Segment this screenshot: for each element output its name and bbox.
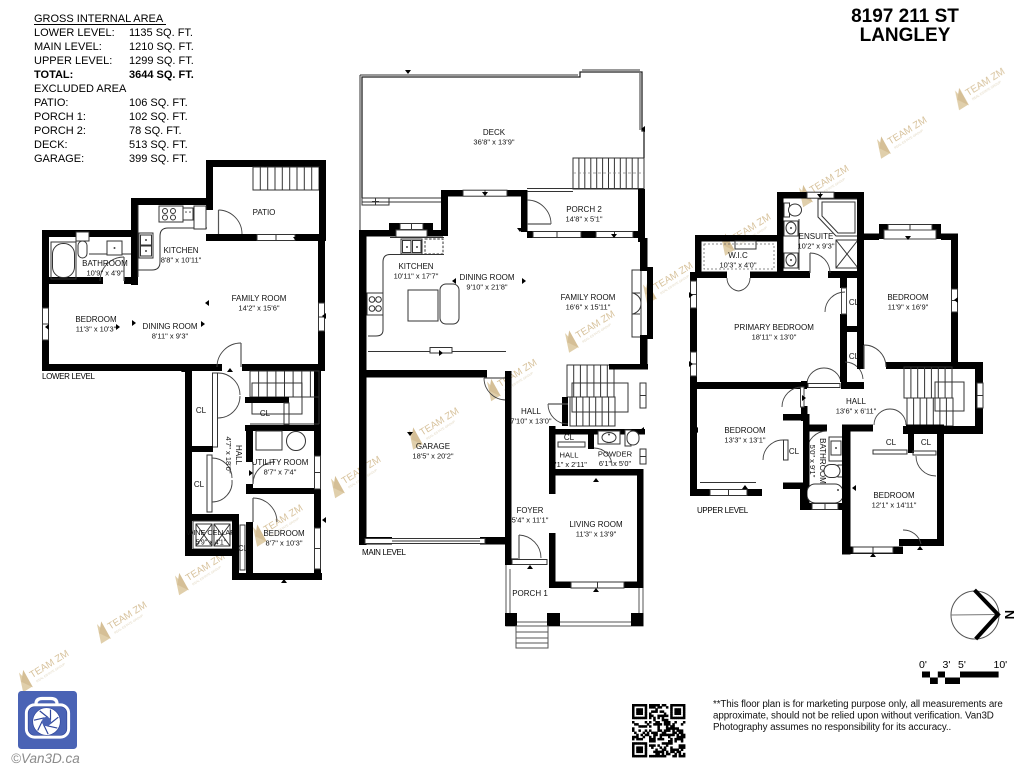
svg-text:1299 SQ. FT.: 1299 SQ. FT. bbox=[129, 55, 194, 67]
svg-text:13'6" x 6'11": 13'6" x 6'11" bbox=[836, 407, 877, 416]
svg-text:3': 3' bbox=[943, 659, 951, 671]
svg-text:TOTAL:: TOTAL: bbox=[34, 69, 73, 81]
svg-text:1210 SQ. FT.: 1210 SQ. FT. bbox=[129, 41, 194, 53]
svg-text:16'6" x 15'11": 16'6" x 15'11" bbox=[566, 303, 611, 312]
svg-text:PORCH 1: PORCH 1 bbox=[512, 589, 548, 598]
svg-text:GARAGE:: GARAGE: bbox=[34, 153, 84, 165]
svg-text:14'2" x 15'6": 14'2" x 15'6" bbox=[238, 304, 279, 313]
svg-text:ENSUITE: ENSUITE bbox=[799, 232, 834, 241]
svg-text:78 SQ. FT.: 78 SQ. FT. bbox=[129, 125, 182, 137]
svg-text:513 SQ. FT.: 513 SQ. FT. bbox=[129, 139, 188, 151]
svg-text:6'1" x 5'0": 6'1" x 5'0" bbox=[599, 459, 632, 468]
svg-text:CL: CL bbox=[196, 406, 207, 415]
svg-text:PRIMARY BEDROOM: PRIMARY BEDROOM bbox=[734, 323, 814, 332]
svg-text:11'3" x 13'9": 11'3" x 13'9" bbox=[576, 530, 617, 539]
svg-text:DINING ROOM: DINING ROOM bbox=[142, 322, 197, 331]
svg-text:EXCLUDED AREA: EXCLUDED AREA bbox=[34, 83, 127, 95]
svg-text:10'3" x 4'0": 10'3" x 4'0" bbox=[720, 261, 757, 270]
svg-text:13'3" x 13'1": 13'3" x 13'1" bbox=[724, 436, 765, 445]
svg-text:8'11" x 9'3": 8'11" x 9'3" bbox=[152, 332, 189, 341]
svg-text:HALL: HALL bbox=[560, 451, 579, 460]
svg-text:DECK:: DECK: bbox=[34, 139, 68, 151]
svg-text:GROSS INTERNAL AREA: GROSS INTERNAL AREA bbox=[34, 13, 164, 25]
svg-text:4'7" x 18'0": 4'7" x 18'0" bbox=[224, 437, 233, 474]
svg-text:MAIN LEVEL: MAIN LEVEL bbox=[362, 548, 407, 557]
svg-text:5'1" x 2'11": 5'1" x 2'11" bbox=[551, 460, 587, 469]
svg-text:UPPER LEVEL:: UPPER LEVEL: bbox=[34, 55, 112, 67]
svg-text:5'9" x 4'1": 5'9" x 4'1" bbox=[196, 540, 227, 547]
svg-text:5'0" x 9'1": 5'0" x 9'1" bbox=[808, 445, 817, 478]
svg-text:FAMILY ROOM: FAMILY ROOM bbox=[561, 293, 616, 302]
svg-text:Photography assumes no respons: Photography assumes no responsibility fo… bbox=[713, 722, 951, 733]
svg-text:9'10" x 21'8": 9'10" x 21'8" bbox=[466, 283, 507, 292]
svg-text:CL: CL bbox=[194, 480, 205, 489]
svg-text:BEDROOM: BEDROOM bbox=[873, 491, 915, 500]
svg-text:WINE CELLAR: WINE CELLAR bbox=[187, 528, 236, 537]
svg-text:FOYER: FOYER bbox=[517, 506, 544, 515]
svg-text:DECK: DECK bbox=[483, 128, 506, 137]
svg-text:CL: CL bbox=[789, 447, 800, 456]
svg-text:CL: CL bbox=[564, 433, 575, 442]
svg-text:W.I.C: W.I.C bbox=[728, 251, 748, 260]
svg-text:CL: CL bbox=[238, 544, 249, 553]
svg-text:18'11" x 13'0": 18'11" x 13'0" bbox=[752, 333, 797, 342]
svg-text:PATIO: PATIO bbox=[253, 208, 276, 217]
svg-text:HALL: HALL bbox=[234, 445, 243, 466]
svg-text:106 SQ. FT.: 106 SQ. FT. bbox=[129, 97, 188, 109]
svg-text:©Van3D.ca: ©Van3D.ca bbox=[11, 751, 80, 766]
svg-text:8'7" x 10'3": 8'7" x 10'3" bbox=[266, 539, 303, 548]
svg-text:10'9" x 4'9": 10'9" x 4'9" bbox=[87, 269, 124, 278]
svg-text:10': 10' bbox=[994, 659, 1008, 671]
svg-text:BEDROOM: BEDROOM bbox=[75, 315, 117, 324]
svg-text:BEDROOM: BEDROOM bbox=[724, 426, 766, 435]
svg-text:LANGLEY: LANGLEY bbox=[860, 25, 951, 46]
svg-text:FAMILY ROOM: FAMILY ROOM bbox=[232, 294, 287, 303]
svg-text:8197 211 ST: 8197 211 ST bbox=[851, 6, 959, 27]
svg-text:HALL: HALL bbox=[521, 407, 542, 416]
svg-text:BEDROOM: BEDROOM bbox=[263, 529, 305, 538]
svg-text:UPPER LEVEL: UPPER LEVEL bbox=[697, 506, 749, 515]
svg-text:N: N bbox=[1002, 610, 1017, 619]
svg-text:1135 SQ. FT.: 1135 SQ. FT. bbox=[129, 27, 193, 39]
svg-text:HALL: HALL bbox=[846, 397, 867, 406]
svg-text:POWDER: POWDER bbox=[598, 450, 633, 459]
svg-text:PORCH 2:: PORCH 2: bbox=[34, 125, 86, 137]
svg-text:GARAGE: GARAGE bbox=[416, 442, 450, 451]
svg-text:LIVING ROOM: LIVING ROOM bbox=[569, 520, 623, 529]
svg-text:399 SQ. FT.: 399 SQ. FT. bbox=[129, 153, 188, 165]
svg-text:LOWER LEVEL: LOWER LEVEL bbox=[42, 372, 96, 381]
svg-text:18'5" x 20'2": 18'5" x 20'2" bbox=[412, 452, 453, 461]
svg-text:BATHROOM: BATHROOM bbox=[82, 259, 128, 268]
svg-text:10'2" x 9'3": 10'2" x 9'3" bbox=[798, 242, 835, 251]
svg-text:102 SQ. FT.: 102 SQ. FT. bbox=[129, 111, 188, 123]
svg-text:approximate, should not be rel: approximate, should not be relied upon w… bbox=[713, 711, 994, 722]
svg-text:14'8" x 5'1": 14'8" x 5'1" bbox=[566, 215, 603, 224]
svg-text:5': 5' bbox=[958, 659, 966, 671]
svg-text:DINING ROOM: DINING ROOM bbox=[459, 273, 514, 282]
svg-text:11'3" x 10'3": 11'3" x 10'3" bbox=[76, 325, 117, 334]
svg-text:0': 0' bbox=[919, 659, 927, 671]
svg-text:**This floor plan is for marke: **This floor plan is for marketing purpo… bbox=[713, 699, 1003, 710]
svg-text:8'7" x 7'4": 8'7" x 7'4" bbox=[264, 468, 297, 477]
svg-text:CL: CL bbox=[886, 438, 897, 447]
svg-text:KITCHEN: KITCHEN bbox=[163, 246, 198, 255]
svg-text:10'11" x 17'7": 10'11" x 17'7" bbox=[394, 272, 439, 281]
svg-text:36'8" x 13'9": 36'8" x 13'9" bbox=[473, 138, 514, 147]
svg-text:LOWER LEVEL:: LOWER LEVEL: bbox=[34, 27, 115, 39]
svg-text:PATIO:: PATIO: bbox=[34, 97, 68, 109]
svg-text:11'9" x 16'9": 11'9" x 16'9" bbox=[888, 303, 929, 312]
svg-text:12'1" x 14'11": 12'1" x 14'11" bbox=[872, 501, 917, 510]
svg-text:8'8" x 10'11": 8'8" x 10'11" bbox=[161, 256, 202, 265]
svg-text:PORCH 2: PORCH 2 bbox=[566, 205, 602, 214]
svg-text:KITCHEN: KITCHEN bbox=[398, 262, 433, 271]
svg-text:BEDROOM: BEDROOM bbox=[887, 293, 929, 302]
svg-text:BATHROOM: BATHROOM bbox=[818, 438, 827, 484]
svg-text:CL: CL bbox=[260, 409, 271, 418]
svg-text:MAIN LEVEL:: MAIN LEVEL: bbox=[34, 41, 102, 53]
svg-text:PORCH 1:: PORCH 1: bbox=[34, 111, 86, 123]
svg-text:UTILITY ROOM: UTILITY ROOM bbox=[252, 458, 309, 467]
svg-text:7'10" x 13'0": 7'10" x 13'0" bbox=[510, 417, 551, 426]
svg-text:3644 SQ. FT.: 3644 SQ. FT. bbox=[129, 69, 194, 81]
svg-text:CL: CL bbox=[921, 438, 932, 447]
svg-text:5'4" x 11'1": 5'4" x 11'1" bbox=[512, 516, 549, 525]
